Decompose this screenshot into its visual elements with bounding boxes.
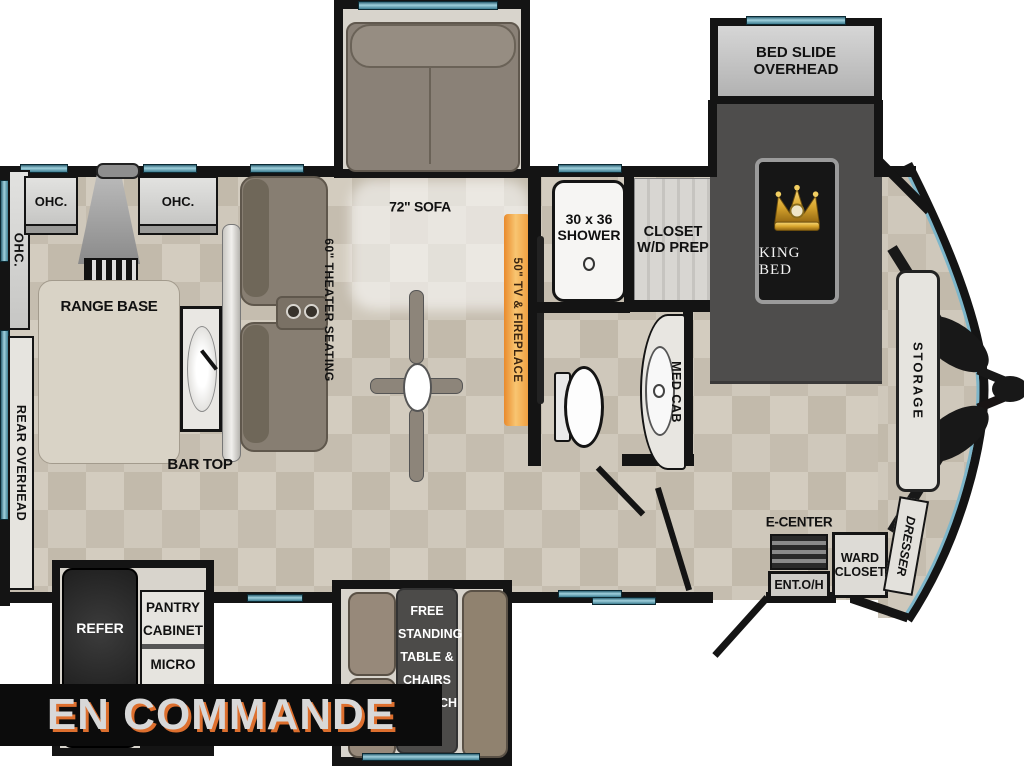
theater-label: 60" THEATER SEATING [322,238,336,381]
overhead-cabinet-left-label: OHC. [35,194,68,209]
ward-closet: WARD CLOSET [832,532,888,598]
e-center-label: E-CENTER [766,516,833,531]
bed-slide-overhead-label-1: BED SLIDE [756,44,836,61]
wall-bottom-1 [0,592,60,603]
theater-seat-back-icon [243,325,269,443]
bar-counter [222,224,241,462]
shower: 30 x 36 SHOWER [552,180,626,302]
window [592,597,656,605]
overhead-cabinet-left-base [24,224,78,235]
med-cab-label: MED CAB [669,361,683,423]
status-banner-text: EN COMMANDE [47,690,395,740]
dinette-chair [348,592,396,676]
overhead-cabinet-right-base [138,224,218,235]
sofa-back-icon [350,24,516,68]
ward-closet-label-2: CLOSET [835,565,886,579]
e-center-unit [770,534,828,570]
range-hood-vent-icon [96,163,140,179]
closet-label-2: W/D PREP [637,240,709,256]
theater-seat-back-icon [243,179,269,297]
closet-wd-prep: CLOSET W/D PREP [634,178,712,302]
sofa-label: 72" SOFA [389,199,451,214]
shower-drain-icon [583,257,595,271]
closet-label-1: CLOSET [644,224,703,240]
vanity-faucet-icon [653,384,665,398]
shower-label-1: 30 x 36 [566,211,613,227]
bar-top-label: BAR TOP [167,457,232,474]
overhead-cabinet-vertical-label: OHC. [12,233,27,268]
pantry-label-1: PANTRY [142,600,204,615]
storage-label: STORAGE [911,342,926,420]
dinette-label-3: TABLE & [398,646,456,669]
sofa-seam-icon [429,66,431,164]
dinette-label-2: STANDING [398,623,456,646]
ceiling-fan-hub-icon [403,363,432,412]
ward-closet-label-1: WARD [841,551,879,565]
window [143,164,197,173]
pantry-micro-divider [142,644,204,649]
window [358,1,498,10]
overhead-cabinet-right: OHC. [138,176,218,226]
window [247,594,303,602]
status-banner: EN COMMANDE [0,684,442,746]
window [558,164,622,173]
toilet-bowl-icon [564,366,604,448]
ceiling-fan-blade-icon [409,408,424,482]
ent-oh-cabinet: ENT.O/H [768,571,830,599]
pantry-label-2: CABINET [142,623,204,638]
dresser-label: DRESSER [894,515,918,577]
theater-console [276,296,328,330]
cupholder-icon [286,304,301,319]
wall-below-closet [624,300,712,312]
range-base-label: RANGE BASE [60,299,157,316]
window [746,16,846,25]
tv-icon [537,236,544,404]
king-bed-label: KING BED [759,245,835,279]
rear-overhead-label: REAR OVERHEAD [14,405,28,521]
window [250,164,304,173]
ceiling-fan-blade-icon [409,290,424,364]
tv-fireplace-label: 50" TV & FIREPLACE [511,258,523,383]
overhead-cabinet-left: OHC. [24,176,78,226]
bed-slide-wall-right [874,100,883,177]
bed-slide-overhead-label-2: OVERHEAD [753,61,838,78]
entry-door-swing [712,595,769,658]
window [362,753,480,761]
cupholder-icon [304,304,319,319]
ent-oh-label: ENT.O/H [774,578,823,592]
rv-floorplan: OHC. REAR OVERHEAD OHC. OHC. RANGE BASE … [0,0,1024,768]
dinette-hutch [462,590,508,758]
wall-shower-closet [624,176,634,306]
shower-label-2: SHOWER [558,227,621,243]
refer-label: REFER [76,620,123,636]
micro-label: MICRO [142,657,204,672]
king-bed: KING BED [755,158,839,304]
dinette-label-1: FREE [398,600,456,623]
bed-slide-overhead: BED SLIDE OVERHEAD [710,18,882,104]
overhead-cabinet-right-label: OHC. [162,194,195,209]
crown-icon [767,183,827,237]
bed-slide-wall-left [708,100,717,177]
wall-below-shower [528,302,630,313]
